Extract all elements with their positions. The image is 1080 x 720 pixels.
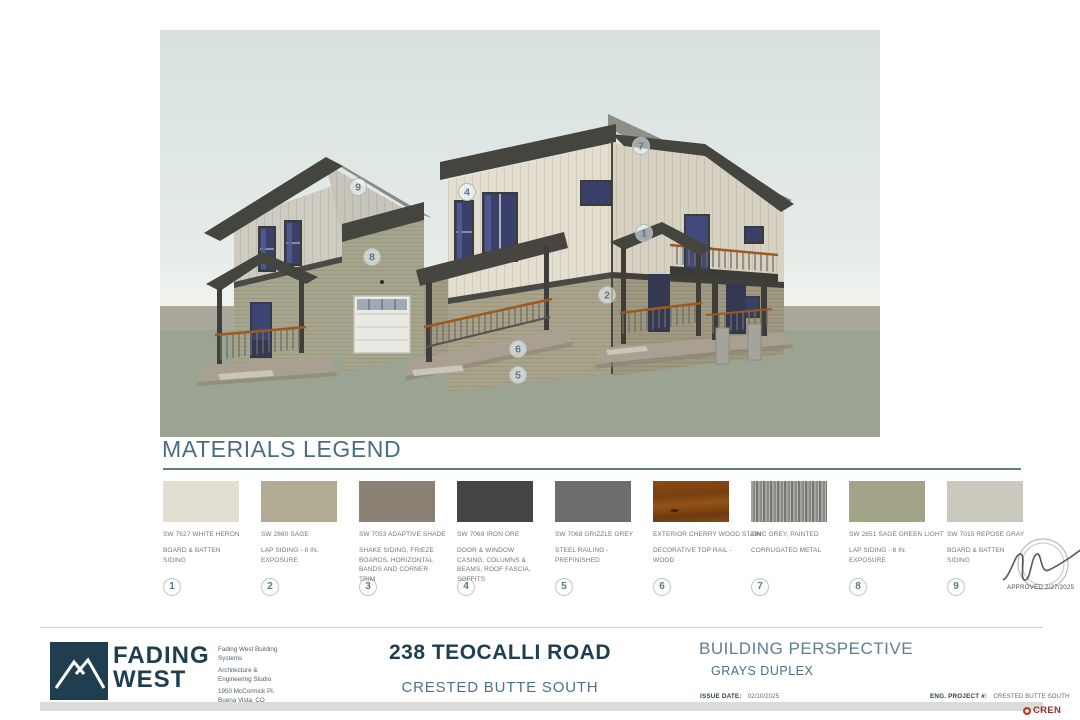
garage-door <box>354 296 410 353</box>
material-swatch <box>359 481 435 522</box>
drawing-sheet: 12456789 MATERIALS LEGEND SW 7627 WHITE … <box>0 0 1080 720</box>
material-number: 2 <box>261 578 279 596</box>
material-callout: 5 <box>510 367 527 384</box>
material-code: SW 7069 IRON ORE <box>457 531 533 539</box>
material-swatch <box>555 481 631 522</box>
material-swatch <box>457 481 533 522</box>
project-title: 238 TEOCALLI ROAD CRESTED BUTTE SOUTH <box>380 641 620 696</box>
material-callout: 2 <box>599 287 616 304</box>
sheet-title: BUILDING PERSPECTIVE <box>699 639 913 659</box>
material-swatch <box>261 481 337 522</box>
approval-stamp: APPROVED 2/27/2025 <box>993 536 1080 600</box>
material-use: SHAKE SIDING, FRIEZE BOARDS, HORIZONTAL … <box>359 546 441 574</box>
material-number: 8 <box>849 578 867 596</box>
material-swatch <box>163 481 239 522</box>
material-number: 6 <box>653 578 671 596</box>
fading-west-logo <box>50 642 108 700</box>
cren-icon <box>1023 707 1031 715</box>
material-callout: 4 <box>459 184 476 201</box>
issue-date-value: 02/10/2025 <box>748 693 780 700</box>
svg-text:5: 5 <box>515 370 521 382</box>
svg-text:9: 9 <box>355 182 361 194</box>
project-address: 238 TEOCALLI ROAD <box>380 641 620 665</box>
firm-studio: Architecture & Engineering Studio <box>218 667 280 684</box>
material-use: DECORATIVE TOP RAIL - WOOD <box>653 546 735 574</box>
material-number: 1 <box>163 578 181 596</box>
logo-line1: FADING <box>113 644 210 668</box>
material-code: SW 2860 SAGE <box>261 531 337 539</box>
material-item: SW 2851 SAGE GREEN LIGHT LAP SIDING - 8 … <box>849 481 925 596</box>
material-use: LAP SIDING - 8 IN. EXPOSURE <box>849 546 931 574</box>
svg-text:6: 6 <box>515 344 521 356</box>
materials-legend-title: MATERIALS LEGEND <box>162 436 401 463</box>
material-item: SW 7069 IRON ORE DOOR & WINDOW CASING, C… <box>457 481 533 596</box>
svg-text:7: 7 <box>638 141 644 153</box>
material-code: SW 2851 SAGE GREEN LIGHT <box>849 531 925 539</box>
material-number: 5 <box>555 578 573 596</box>
material-item: ZINC GREY, PAINTED CORRUGATED METAL 7 <box>751 481 827 596</box>
legend-row: SW 7627 WHITE HERON BOARD & BATTEN SIDIN… <box>163 481 1023 596</box>
material-callout: 9 <box>350 179 367 196</box>
material-swatch <box>849 481 925 522</box>
bottom-bar <box>40 702 1043 711</box>
material-swatch <box>751 481 827 522</box>
material-code: EXTERIOR CHERRY WOOD STAIN <box>653 531 729 539</box>
issue-date-label: ISSUE DATE: <box>700 693 742 700</box>
material-callout: 6 <box>510 341 527 358</box>
legend-divider <box>163 468 1021 470</box>
eng-project-value: CRESTED BUTTE SOUTH <box>993 693 1069 700</box>
material-use: BOARD & BATTEN SIDING <box>163 546 245 574</box>
material-callout: 8 <box>364 249 381 266</box>
cren-logo: CREN <box>1023 705 1061 716</box>
cren-text: CREN <box>1033 705 1061 716</box>
building-rendering: 12456789 <box>160 30 880 437</box>
eng-project-row: ENG. PROJECT #: CRESTED BUTTE SOUTH <box>930 693 1070 700</box>
material-swatch <box>653 481 729 522</box>
mountain-icon <box>50 642 108 700</box>
approved-text: APPROVED 2/27/2025 <box>1007 584 1075 591</box>
material-item: EXTERIOR CHERRY WOOD STAIN DECORATIVE TO… <box>653 481 729 596</box>
svg-text:1: 1 <box>641 228 647 240</box>
titleblock-divider <box>40 627 1043 628</box>
svg-text:4: 4 <box>464 187 470 199</box>
issue-date-row: ISSUE DATE: 02/10/2025 <box>700 693 779 700</box>
material-item: SW 7627 WHITE HERON BOARD & BATTEN SIDIN… <box>163 481 239 596</box>
eng-project-label: ENG. PROJECT #: <box>930 693 987 700</box>
material-callout: 7 <box>633 138 650 155</box>
material-number: 7 <box>751 578 769 596</box>
project-subdivision: CRESTED BUTTE SOUTH <box>380 679 620 696</box>
material-code: SW 7627 WHITE HERON <box>163 531 239 539</box>
material-use: DOOR & WINDOW CASING, COLUMNS & BEAMS, R… <box>457 546 539 574</box>
material-number: 9 <box>947 578 965 596</box>
material-callout: 1 <box>636 225 653 242</box>
material-item: SW 7053 ADAPTIVE SHADE SHAKE SIDING, FRI… <box>359 481 435 596</box>
material-use: STEEL RAILING - PREFINISHED <box>555 546 637 574</box>
logo-wordmark: FADING WEST <box>113 644 210 691</box>
project-name: GRAYS DUPLEX <box>711 664 813 678</box>
firm-name: Fading West Building Systems <box>218 646 280 663</box>
svg-text:2: 2 <box>604 290 610 302</box>
svg-text:8: 8 <box>369 252 375 264</box>
material-use: LAP SIDING - 8 IN. EXPOSURE <box>261 546 343 574</box>
material-swatch <box>947 481 1023 522</box>
material-code: SW 7053 ADAPTIVE SHADE <box>359 531 435 539</box>
material-item: SW 2860 SAGE LAP SIDING - 8 IN. EXPOSURE… <box>261 481 337 596</box>
material-use: CORRUGATED METAL <box>751 546 833 574</box>
logo-line2: WEST <box>113 668 210 692</box>
material-item: SW 7068 GRIZZLE GREY STEEL RAILING - PRE… <box>555 481 631 596</box>
material-code: SW 7068 GRIZZLE GREY <box>555 531 631 539</box>
material-code: ZINC GREY, PAINTED <box>751 531 827 539</box>
